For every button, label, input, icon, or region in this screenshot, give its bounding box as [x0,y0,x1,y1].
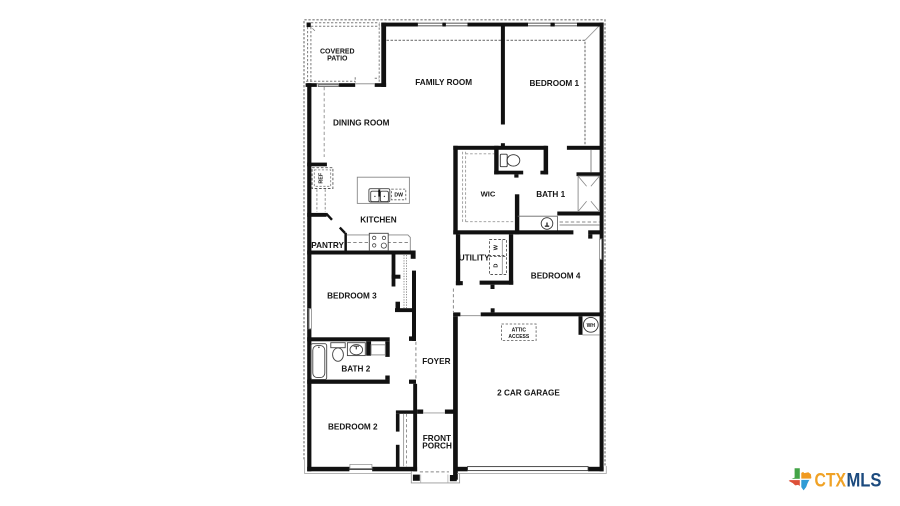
svg-text:WIC: WIC [481,189,496,198]
svg-text:WH: WH [587,323,596,329]
svg-text:PATIO: PATIO [327,55,348,62]
svg-text:KITCHEN: KITCHEN [360,215,396,224]
svg-text:MLS: MLS [847,470,882,492]
svg-text:UTILITY: UTILITY [459,254,490,263]
svg-text:ATTIC: ATTIC [512,328,527,334]
svg-text:ACCESS: ACCESS [508,334,530,340]
svg-text:W: W [494,244,500,250]
svg-text:COVERED: COVERED [320,48,355,55]
svg-text:BEDROOM 3: BEDROOM 3 [327,291,377,300]
svg-text:DINING ROOM: DINING ROOM [333,118,390,127]
svg-text:BEDROOM 2: BEDROOM 2 [328,423,378,432]
svg-text:BEDROOM 4: BEDROOM 4 [531,271,581,280]
svg-text:D: D [494,264,500,268]
svg-text:DW: DW [394,193,403,199]
svg-text:2 CAR GARAGE: 2 CAR GARAGE [497,389,560,398]
svg-text:FAMILY ROOM: FAMILY ROOM [415,78,472,87]
svg-text:BATH 2: BATH 2 [341,365,370,374]
svg-text:BATH 1: BATH 1 [536,190,565,199]
svg-text:REF: REF [318,172,324,183]
svg-text:BEDROOM 1: BEDROOM 1 [530,79,580,88]
svg-text:CTX: CTX [815,470,847,492]
svg-text:FOYER: FOYER [422,357,450,366]
svg-text:PANTRY: PANTRY [311,241,344,250]
svg-text:PORCH: PORCH [422,441,452,450]
